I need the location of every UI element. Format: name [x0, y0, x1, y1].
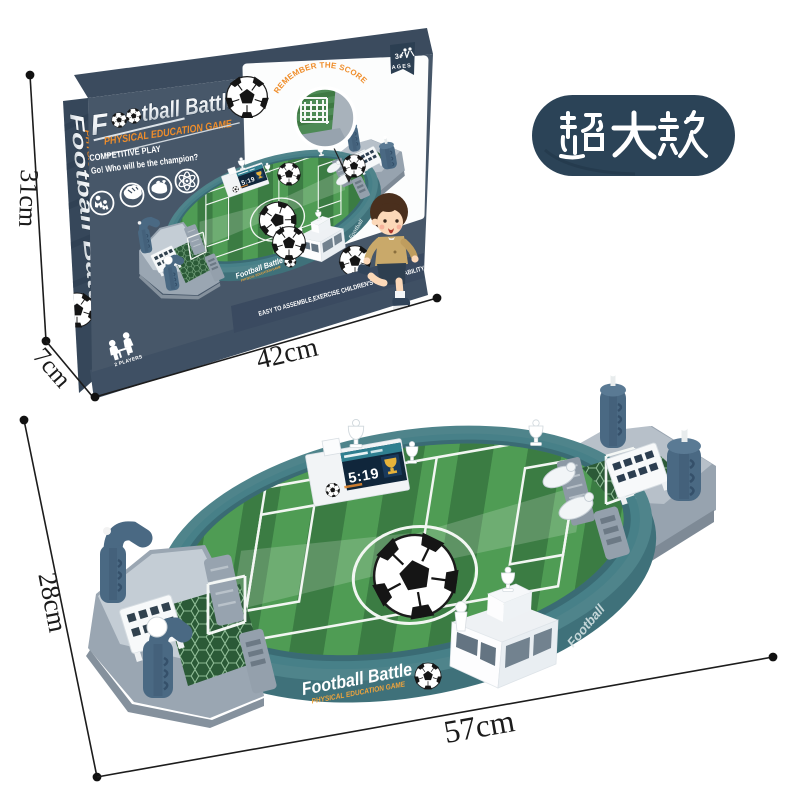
svg-text:31cm: 31cm [13, 169, 44, 228]
